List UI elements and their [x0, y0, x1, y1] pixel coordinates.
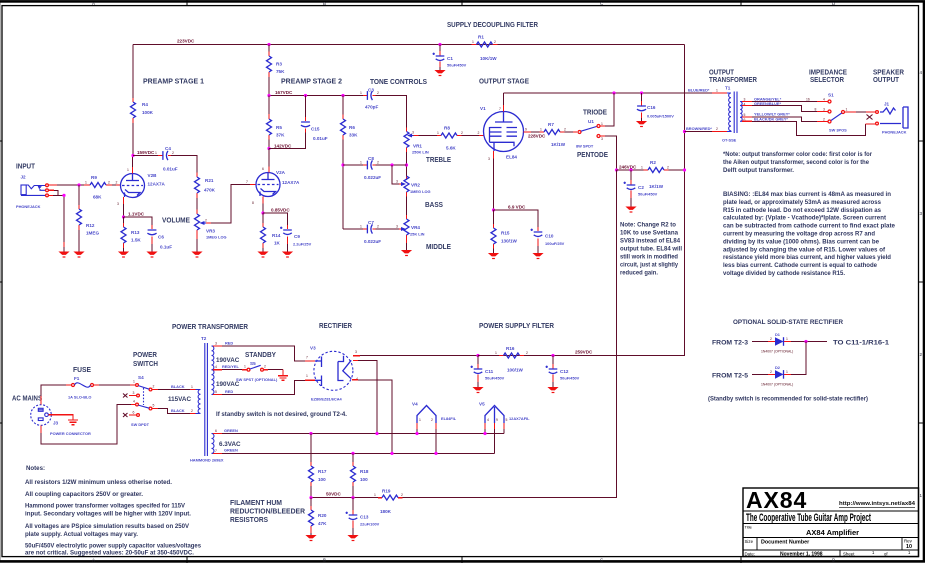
svg-text:3: 3: [133, 391, 135, 395]
svg-text:6.3VAC: 6.3VAC: [219, 441, 241, 448]
svg-text:POWER: POWER: [133, 352, 157, 359]
svg-text:3: 3: [412, 131, 414, 135]
svg-text:142VDC: 142VDC: [274, 144, 292, 149]
svg-text:2: 2: [770, 337, 772, 341]
svg-text:BLACK: BLACK: [171, 384, 185, 389]
svg-text:TRANSFORMER: TRANSFORMER: [709, 77, 757, 84]
svg-text:0.022uF: 0.022uF: [364, 239, 381, 244]
svg-text:1: 1: [437, 131, 439, 135]
svg-text:9: 9: [525, 128, 527, 132]
svg-text:RED/YEL: RED/YEL: [222, 364, 239, 369]
svg-text:1: 1: [127, 168, 129, 172]
svg-text:*Note: output transformer colo: *Note: output transformer color code: fi…: [723, 151, 872, 158]
svg-text:R6: R6: [349, 125, 355, 130]
svg-text:Notes:: Notes:: [26, 465, 45, 472]
svg-text:R14: R14: [272, 233, 281, 238]
svg-text:BLACK: BLACK: [171, 408, 185, 413]
svg-text:5: 5: [215, 390, 217, 394]
svg-text:7: 7: [215, 449, 217, 453]
svg-text:RESISTORS: RESISTORS: [230, 517, 268, 524]
svg-text:J1: J1: [884, 102, 890, 107]
svg-text:plate supply. Actual voltages: plate supply. Actual voltages may vary.: [25, 531, 138, 538]
svg-text:R12: R12: [86, 223, 95, 228]
svg-text:If standby switch is not desir: If standby switch is not desired, ground…: [216, 411, 347, 418]
svg-text:250K LIN: 250K LIN: [412, 150, 429, 155]
svg-text:The Cooperative Tube Guitar Am: The Cooperative Tube Guitar Amp Project: [746, 512, 871, 524]
svg-text:2: 2: [172, 151, 174, 155]
svg-text:OT-SSE: OT-SSE: [722, 138, 737, 143]
svg-text:MIDDLE: MIDDLE: [426, 244, 451, 251]
svg-text:GREEN: GREEN: [224, 428, 238, 433]
svg-text:2: 2: [770, 370, 772, 374]
svg-text:1: 1: [85, 181, 87, 185]
svg-text:R3: R3: [276, 62, 282, 67]
svg-text:1K: 1K: [274, 241, 281, 246]
svg-text:50uF/450V: 50uF/450V: [560, 376, 580, 381]
svg-text:SV83 instead of EL84: SV83 instead of EL84: [620, 238, 680, 245]
svg-text:50uF/450V electrolytic power s: 50uF/450V electrolytic power supply capa…: [25, 543, 201, 550]
svg-text:1: 1: [306, 374, 308, 378]
svg-text:6: 6: [262, 167, 264, 171]
svg-text:22uF/100V: 22uF/100V: [360, 522, 380, 527]
svg-text:167VDC: 167VDC: [275, 90, 293, 95]
svg-text:2: 2: [116, 181, 118, 185]
svg-text:SUPPLY DECOUPLING FILTER: SUPPLY DECOUPLING FILTER: [447, 22, 538, 29]
svg-text:1: 1: [244, 365, 246, 369]
svg-text:adjusted by changing the value: adjusted by changing the value of R15. L…: [723, 246, 886, 253]
svg-text:FROM T2-5: FROM T2-5: [712, 373, 748, 380]
svg-text:68K: 68K: [93, 195, 102, 200]
svg-text:2: 2: [401, 493, 403, 497]
svg-text:1N4007 (OPTIONAL): 1N4007 (OPTIONAL): [761, 350, 793, 354]
svg-text:C9: C9: [294, 234, 300, 239]
svg-text:1: 1: [472, 40, 474, 44]
svg-text:Hammond power transformer volt: Hammond power transformer voltages speci…: [25, 503, 186, 510]
svg-text:1: 1: [716, 89, 718, 93]
svg-text:C1: C1: [447, 56, 453, 61]
svg-text:10K/1W: 10K/1W: [480, 56, 497, 61]
svg-text:75K: 75K: [276, 69, 285, 74]
svg-text:Date:: Date:: [745, 552, 756, 557]
svg-text:2: 2: [526, 351, 528, 355]
svg-text:2: 2: [377, 91, 379, 95]
svg-text:2: 2: [823, 118, 825, 122]
svg-text:OUTPUT STAGE: OUTPUT STAGE: [479, 79, 529, 86]
svg-text:HAMMOND 269EX: HAMMOND 269EX: [190, 458, 224, 463]
svg-text:TRIODE: TRIODE: [583, 110, 607, 117]
svg-text:1: 1: [786, 370, 788, 374]
svg-text:8: 8: [252, 201, 254, 205]
svg-text:BIASING: :EL84 max bias curren: BIASING: :EL84 max bias current is 48mA …: [723, 191, 891, 198]
svg-text:resistance yield more bias cur: resistance yield more bias current, and …: [723, 254, 891, 261]
svg-text:2: 2: [108, 181, 110, 185]
svg-text:C10: C10: [545, 234, 554, 239]
svg-text:3: 3: [396, 180, 398, 184]
svg-text:R15 in cathode lead. Do not e: R15 in cathode lead. Do not exceed 12W d…: [723, 207, 881, 214]
svg-text:F1: F1: [74, 376, 80, 381]
svg-text:2: 2: [667, 166, 669, 170]
svg-text:5: 5: [506, 418, 508, 422]
svg-text:190VAC: 190VAC: [216, 381, 240, 388]
svg-text:AX84: AX84: [746, 487, 807, 513]
svg-text:C4: C4: [165, 146, 171, 151]
svg-text:259VDC: 259VDC: [575, 350, 593, 355]
svg-text:INPUT: INPUT: [16, 164, 36, 171]
svg-text:1: 1: [360, 225, 362, 229]
svg-text:7: 7: [306, 356, 308, 360]
svg-text:RED: RED: [225, 389, 233, 394]
svg-text:1: 1: [540, 128, 542, 132]
svg-text:D2: D2: [775, 365, 781, 370]
svg-text:1.1VDC: 1.1VDC: [128, 212, 145, 217]
svg-text:2: 2: [716, 127, 718, 131]
svg-text:VR3: VR3: [206, 229, 215, 234]
svg-text:less bias current. Cathode cu: less bias current. Cathode current is eq…: [723, 262, 877, 269]
svg-text:470pF: 470pF: [365, 105, 378, 110]
svg-text:R13: R13: [131, 230, 140, 235]
svg-text:Title: Title: [745, 525, 753, 530]
svg-text:TREBLE: TREBLE: [426, 157, 451, 164]
svg-text:RED: RED: [225, 341, 233, 346]
svg-text:50uF/450V: 50uF/450V: [638, 192, 658, 197]
svg-text:4: 4: [823, 98, 825, 102]
svg-text:SW DPDT: SW DPDT: [131, 422, 150, 427]
svg-text:FROM T2-3: FROM T2-3: [712, 340, 748, 347]
svg-text:BASS: BASS: [425, 202, 443, 209]
svg-text:S1: S1: [828, 93, 834, 98]
svg-text:1A SLO-BLO: 1A SLO-BLO: [68, 395, 91, 400]
svg-text:All resistors 1/2W minimum unl: All resistors 1/2W minimum unless otheri…: [25, 479, 172, 486]
svg-text:OUTPUT: OUTPUT: [709, 70, 735, 77]
svg-text:are not critical. Suggested v: are not critical. Suggested values: 20-5…: [25, 550, 194, 557]
svg-text:1: 1: [133, 380, 135, 384]
svg-text:3: 3: [396, 225, 398, 229]
svg-text:A: A: [92, 1, 95, 6]
svg-text:C7: C7: [368, 220, 374, 225]
svg-text:C12: C12: [560, 369, 569, 374]
svg-text:PHONEJACK: PHONEJACK: [16, 204, 41, 209]
svg-text:3: 3: [601, 137, 603, 141]
svg-text:R15: R15: [501, 231, 510, 236]
svg-text:2: 2: [431, 418, 433, 422]
svg-text:1N4007 (OPTIONAL): 1N4007 (OPTIONAL): [761, 383, 793, 387]
svg-text:POWER TRANSFORMER: POWER TRANSFORMER: [172, 324, 248, 331]
svg-text:SW 3POS: SW 3POS: [829, 128, 847, 133]
svg-text:3: 3: [355, 350, 357, 354]
svg-text:2: 2: [461, 131, 463, 135]
svg-text:BLACK/DK GREY*: BLACK/DK GREY*: [754, 116, 788, 121]
svg-text:PHONEJACK: PHONEJACK: [882, 130, 907, 135]
svg-text:input. Secondary voltages wil: input. Secondary voltages will be higher…: [25, 511, 191, 518]
svg-text:25K LIN: 25K LIN: [410, 232, 425, 237]
svg-text:R20: R20: [318, 513, 327, 518]
svg-text:2: 2: [377, 225, 379, 229]
svg-text:R9: R9: [91, 175, 97, 180]
svg-text:1K/1W: 1K/1W: [649, 184, 664, 189]
svg-text:C16: C16: [647, 105, 656, 110]
svg-text:B: B: [323, 1, 326, 6]
svg-text:C15: C15: [311, 127, 320, 132]
svg-text:10K to use Svetlana: 10K to use Svetlana: [620, 230, 678, 237]
svg-text:100K: 100K: [142, 110, 154, 115]
svg-text:8: 8: [815, 108, 817, 112]
svg-text:159VDC: 159VDC: [137, 150, 155, 155]
svg-text:output tube. EL84 will: output tube. EL84 will: [620, 246, 682, 253]
svg-text:100/1W: 100/1W: [507, 368, 523, 373]
svg-text:November 1, 1998: November 1, 1998: [780, 552, 823, 558]
svg-text:3: 3: [215, 342, 217, 346]
svg-text:2.2uF/25V: 2.2uF/25V: [293, 242, 312, 247]
svg-text:6: 6: [215, 429, 217, 433]
svg-text:T1: T1: [725, 86, 731, 91]
svg-text:Note: Change R2 to: Note: Change R2 to: [620, 222, 676, 229]
svg-text:AX84 Amplifier: AX84 Amplifier: [806, 528, 859, 537]
svg-text:2: 2: [377, 161, 379, 165]
svg-text:5.6K: 5.6K: [446, 146, 456, 151]
svg-text:OPTIONAL SOLID-STATE RECTIFIER: OPTIONAL SOLID-STATE RECTIFIER: [733, 319, 843, 326]
svg-text:can be subtracted from cathode: can be subtracted from cathode current t…: [723, 223, 895, 230]
svg-text:7: 7: [499, 107, 501, 111]
svg-text:4: 4: [487, 418, 489, 422]
svg-text:B: B: [323, 558, 326, 563]
svg-text:OUTPUT: OUTPUT: [873, 77, 900, 84]
svg-text:S5: S5: [250, 361, 256, 366]
svg-text:POWER CONNECTOR: POWER CONNECTOR: [50, 431, 91, 436]
svg-text:2: 2: [564, 128, 566, 132]
svg-text:All voltages are PSpice simula: All voltages are PSpice simulation resul…: [25, 523, 190, 530]
svg-text:3: 3: [117, 202, 119, 206]
svg-text:D1: D1: [775, 332, 781, 337]
svg-text:V4: V4: [412, 402, 418, 407]
svg-text:R5: R5: [276, 125, 282, 130]
svg-text:(Standby switch is recommended: (Standby switch is recommended for solid…: [708, 396, 868, 403]
svg-text:470K: 470K: [204, 188, 216, 193]
svg-text:U1: U1: [588, 119, 594, 124]
svg-text:calculated by: (Vplate - Vcath: calculated by: (Vplate - Vcathode)*Iplat…: [723, 215, 887, 222]
svg-text:FUSE: FUSE: [73, 367, 91, 374]
svg-text:Document Number: Document Number: [761, 540, 810, 546]
svg-text:Sheet: Sheet: [843, 552, 855, 557]
svg-text:TONE CONTROLS: TONE CONTROLS: [370, 79, 427, 86]
svg-text:POWER SUPPLY FILTER: POWER SUPPLY FILTER: [479, 323, 554, 330]
svg-text:1: 1: [374, 493, 376, 497]
svg-text:246VDC: 246VDC: [619, 165, 637, 170]
svg-text:PENTODE: PENTODE: [577, 152, 608, 159]
svg-text:R16: R16: [506, 346, 515, 351]
svg-text:REDUCTION/BLEEDER: REDUCTION/BLEEDER: [230, 509, 305, 516]
svg-text:12AX7A: 12AX7A: [148, 182, 166, 187]
svg-text:http://www.intsys.net/ax84: http://www.intsys.net/ax84: [839, 501, 916, 507]
svg-text:EL84: EL84: [506, 155, 517, 160]
svg-text:47K: 47K: [318, 521, 327, 526]
svg-text:12AX7AFIL: 12AX7AFIL: [509, 416, 530, 421]
svg-text:the Aiken output transformer,: the Aiken output transformer, second col…: [723, 159, 869, 166]
svg-text:37K: 37K: [276, 133, 285, 138]
svg-text:4: 4: [133, 400, 135, 404]
svg-text:1: 1: [846, 108, 848, 112]
svg-text:R18: R18: [360, 469, 369, 474]
svg-text:1: 1: [419, 418, 421, 422]
svg-text:V1: V1: [480, 106, 486, 111]
svg-text:PREAMP STAGE 2: PREAMP STAGE 2: [281, 79, 342, 86]
svg-text:C3: C3: [368, 88, 374, 93]
svg-text:R21: R21: [205, 178, 214, 183]
svg-text:V3: V3: [310, 346, 316, 351]
svg-text:8W SPDT: 8W SPDT: [576, 144, 594, 149]
svg-text:C2: C2: [638, 185, 644, 190]
svg-text:S4: S4: [138, 375, 144, 380]
svg-text:J2: J2: [21, 175, 27, 180]
svg-text:R7: R7: [548, 122, 554, 127]
svg-text:50VDC: 50VDC: [326, 492, 341, 497]
svg-text:33K: 33K: [349, 133, 358, 138]
svg-text:228VDC: 228VDC: [528, 134, 546, 139]
svg-text:SWITCH: SWITCH: [133, 361, 158, 368]
svg-text:FILAMENT HUM: FILAMENT HUM: [230, 500, 282, 507]
svg-text:1MEG: 1MEG: [86, 231, 99, 236]
svg-text:3: 3: [488, 157, 490, 161]
svg-text:dividing by its value (1000 oh: dividing by its value (1000 ohms). Bias …: [723, 238, 879, 245]
svg-text:voltage divided by cathode res: voltage divided by cathode resistance R1…: [723, 270, 845, 277]
svg-text:2: 2: [478, 131, 480, 135]
svg-text:current by measuring the volta: current by measuring the voltage drop ac…: [723, 231, 875, 238]
svg-text:Size: Size: [745, 539, 754, 544]
svg-text:100uF/25V: 100uF/25V: [545, 241, 565, 246]
svg-text:V5: V5: [479, 402, 485, 407]
svg-text:2: 2: [191, 409, 193, 413]
svg-text:2: 2: [264, 365, 266, 369]
svg-text:C13: C13: [360, 515, 369, 520]
svg-text:STANDBY: STANDBY: [245, 352, 276, 359]
svg-text:7: 7: [246, 180, 248, 184]
svg-text:1MEG LOG: 1MEG LOG: [410, 189, 431, 194]
svg-text:4: 4: [215, 365, 217, 369]
svg-text:IMPEDANCE: IMPEDANCE: [809, 70, 847, 77]
svg-text:R2: R2: [650, 160, 656, 165]
svg-text:VR1: VR1: [413, 144, 422, 149]
svg-text:V2B: V2B: [148, 173, 158, 178]
svg-text:2: 2: [205, 219, 207, 223]
svg-text:C8: C8: [368, 156, 374, 161]
svg-text:1K/1W: 1K/1W: [551, 142, 566, 147]
svg-text:9: 9: [496, 418, 498, 422]
svg-text:plate lead, or approximately: plate lead, or approximately 53mA as mea…: [723, 199, 881, 206]
svg-text:V2A: V2A: [276, 170, 286, 175]
svg-text:0.01uF: 0.01uF: [163, 167, 178, 172]
svg-text:0.01uF: 0.01uF: [313, 136, 328, 141]
svg-text:T2: T2: [201, 336, 207, 341]
svg-text:SELECTOR: SELECTOR: [810, 77, 844, 84]
svg-text:BLUE/RED*: BLUE/RED*: [688, 88, 710, 93]
svg-text:All coupling capacitors 250V o: All coupling capacitors 250V or greater.: [25, 491, 143, 498]
svg-text:TO C11-1/R16-1: TO C11-1/R16-1: [833, 340, 890, 347]
svg-text:1MEG LOG: 1MEG LOG: [206, 235, 227, 240]
svg-text:0.85VDC: 0.85VDC: [271, 208, 290, 213]
svg-text:130/1W: 130/1W: [501, 239, 517, 244]
svg-text:2: 2: [494, 40, 496, 44]
svg-text:PREAMP STAGE 1: PREAMP STAGE 1: [143, 79, 204, 86]
svg-text:1: 1: [360, 91, 362, 95]
svg-text:6: 6: [133, 411, 135, 415]
svg-text:0.005uF/1500V: 0.005uF/1500V: [647, 114, 674, 119]
svg-text:R19: R19: [382, 489, 391, 494]
svg-text:6.9 VDC: 6.9 VDC: [508, 205, 526, 210]
svg-text:50uF/450V: 50uF/450V: [485, 376, 505, 381]
svg-text:1: 1: [495, 351, 497, 355]
svg-text:A: A: [92, 558, 95, 563]
svg-text:AC MAINS: AC MAINS: [12, 396, 42, 403]
svg-text:Delft output transformer.: Delft output transformer.: [723, 167, 794, 174]
svg-text:115VAC: 115VAC: [168, 396, 191, 403]
svg-text:3: 3: [823, 108, 825, 112]
svg-text:GREEN/BLUE*: GREEN/BLUE*: [754, 101, 782, 106]
svg-text:0.1uF: 0.1uF: [160, 245, 172, 250]
svg-text:R4: R4: [142, 102, 148, 107]
svg-text:1: 1: [360, 161, 362, 165]
svg-text:12AX7A: 12AX7A: [282, 180, 300, 185]
svg-text:circuit, just at slightly: circuit, just at slightly: [620, 262, 678, 269]
svg-text:EL84FIL: EL84FIL: [441, 416, 457, 421]
svg-text:223VDC: 223VDC: [177, 39, 195, 44]
svg-text:5: 5: [153, 404, 155, 408]
svg-text:0.022uF: 0.022uF: [364, 175, 381, 180]
svg-text:J3: J3: [53, 421, 59, 426]
svg-text:VOLUME: VOLUME: [162, 218, 190, 225]
svg-text:1: 1: [786, 337, 788, 341]
svg-text:1.5K: 1.5K: [131, 238, 141, 243]
svg-text:SW SPST (OPTIONAL): SW SPST (OPTIONAL): [236, 377, 278, 382]
svg-text:EZ80/EZ81/6CA4: EZ80/EZ81/6CA4: [311, 397, 343, 402]
svg-text:RECTIFIER: RECTIFIER: [319, 323, 352, 330]
svg-text:VR4: VR4: [411, 225, 420, 230]
svg-text:VR2: VR2: [411, 183, 420, 188]
svg-text:1: 1: [191, 385, 193, 389]
svg-text:100: 100: [360, 477, 368, 482]
svg-text:190VAC: 190VAC: [216, 357, 240, 364]
svg-text:R1: R1: [478, 35, 484, 40]
svg-text:C11: C11: [485, 369, 494, 374]
svg-text:180K: 180K: [380, 509, 392, 514]
svg-text:still work in modified: still work in modified: [620, 254, 678, 261]
svg-text:1: 1: [641, 166, 643, 170]
svg-text:SPEAKER: SPEAKER: [873, 70, 904, 77]
svg-text:R8: R8: [444, 126, 450, 131]
svg-text:C6: C6: [158, 235, 164, 240]
svg-text:16: 16: [806, 98, 810, 102]
svg-text:100: 100: [318, 477, 326, 482]
svg-text:GREEN: GREEN: [224, 448, 238, 453]
svg-text:1: 1: [155, 151, 157, 155]
svg-text:Rev: Rev: [904, 539, 913, 544]
svg-text:50uF/450V: 50uF/450V: [447, 63, 467, 68]
svg-text:R17: R17: [318, 469, 327, 474]
svg-text:BROWN/RED*: BROWN/RED*: [686, 126, 712, 131]
svg-text:2: 2: [153, 385, 155, 389]
svg-text:reduced gain.: reduced gain.: [620, 270, 658, 277]
